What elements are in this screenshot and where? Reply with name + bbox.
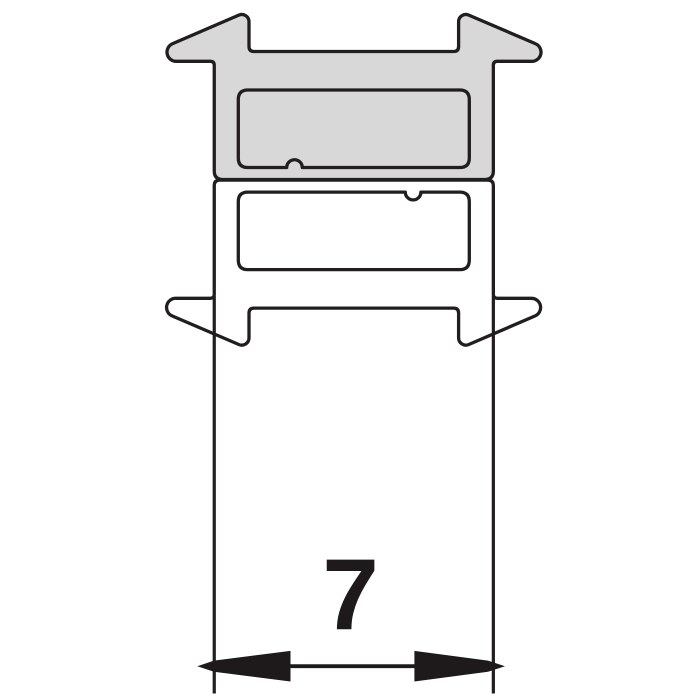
svg-text:7: 7 [322,538,378,652]
